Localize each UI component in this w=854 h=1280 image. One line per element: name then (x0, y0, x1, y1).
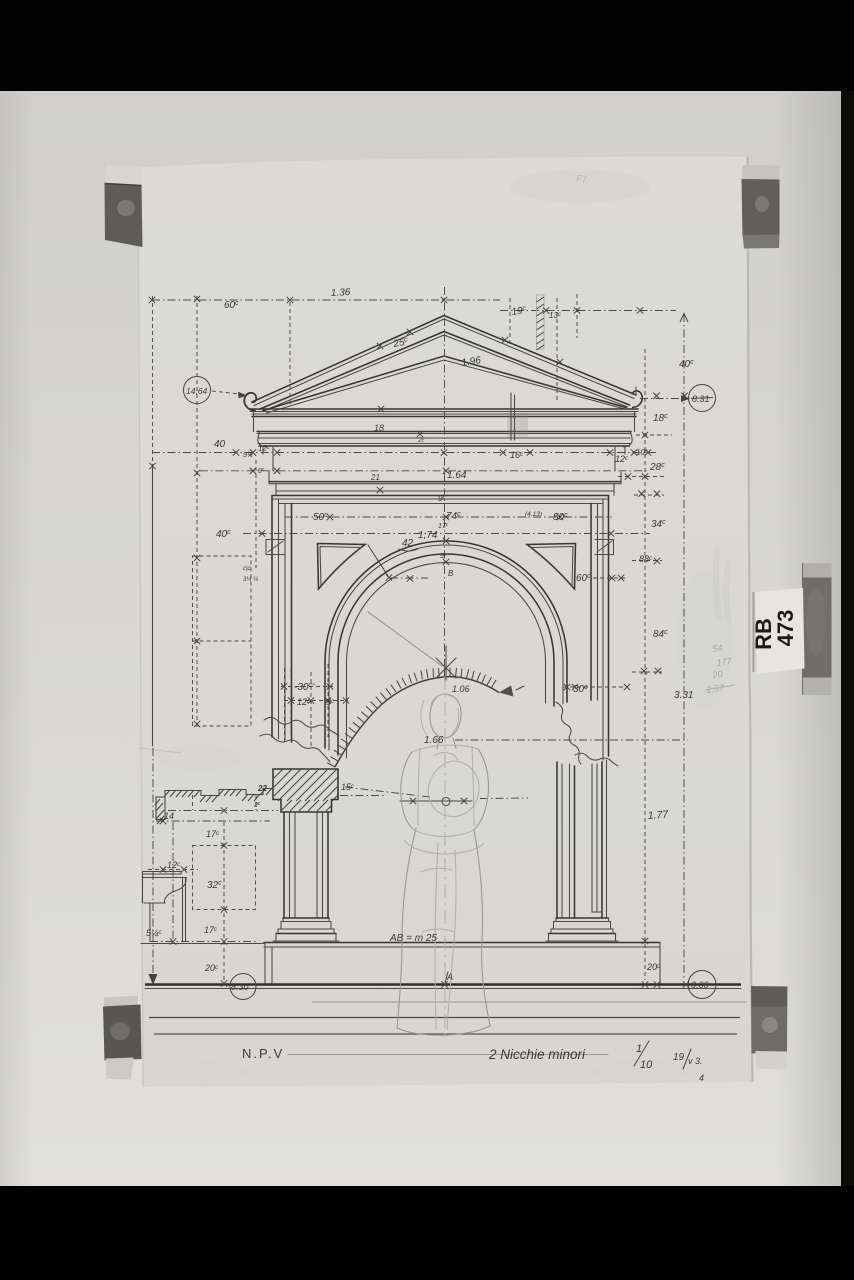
svg-text:1: 1 (636, 1043, 642, 1055)
svg-text:1.66: 1.66 (424, 735, 444, 746)
svg-text:8.30: 8.30 (231, 982, 249, 992)
svg-text:1.64: 1.64 (447, 470, 467, 481)
svg-text:18: 18 (374, 423, 384, 433)
svg-text:1,74: 1,74 (418, 530, 438, 541)
svg-text:9¾: 9¾ (243, 452, 253, 459)
svg-text:19: 19 (673, 1052, 685, 1063)
svg-text:B: B (448, 569, 454, 578)
svg-text:40: 40 (214, 439, 226, 450)
svg-text:54: 54 (712, 643, 723, 654)
svg-text:22: 22 (257, 784, 267, 793)
svg-text:14: 14 (164, 811, 174, 821)
svg-text:2c: 2c (417, 437, 425, 444)
svg-text:8.31: 8.31 (692, 394, 710, 404)
svg-text:3.31: 3.31 (674, 690, 693, 701)
svg-text:1.36: 1.36 (331, 287, 351, 299)
svg-text:20: 20 (711, 669, 723, 680)
svg-text:AB = m 25: AB = m 25 (389, 933, 437, 944)
svg-text:4: 4 (699, 1073, 704, 1083)
svg-text:21: 21 (370, 473, 380, 482)
svg-text:3¼ ¼: 3¼ ¼ (243, 577, 258, 583)
svg-text:1.06: 1.06 (452, 684, 470, 694)
svg-text:1.77: 1.77 (647, 809, 669, 822)
svg-text:c|c: c|c (243, 566, 251, 572)
svg-text:N.P.V: N.P.V (242, 1046, 284, 1061)
svg-text:42: 42 (402, 538, 414, 549)
svg-text:(4.13): (4.13) (525, 511, 542, 518)
svg-text:v 3.: v 3. (688, 1056, 703, 1066)
svg-text:14,64: 14,64 (186, 386, 208, 396)
svg-text:F7: F7 (576, 173, 588, 184)
svg-text:0,00: 0,00 (691, 980, 709, 990)
svg-text:2 Nicchie minori: 2 Nicchie minori (488, 1047, 586, 1062)
svg-text:473: 473 (773, 610, 798, 647)
svg-text:10: 10 (640, 1059, 653, 1071)
